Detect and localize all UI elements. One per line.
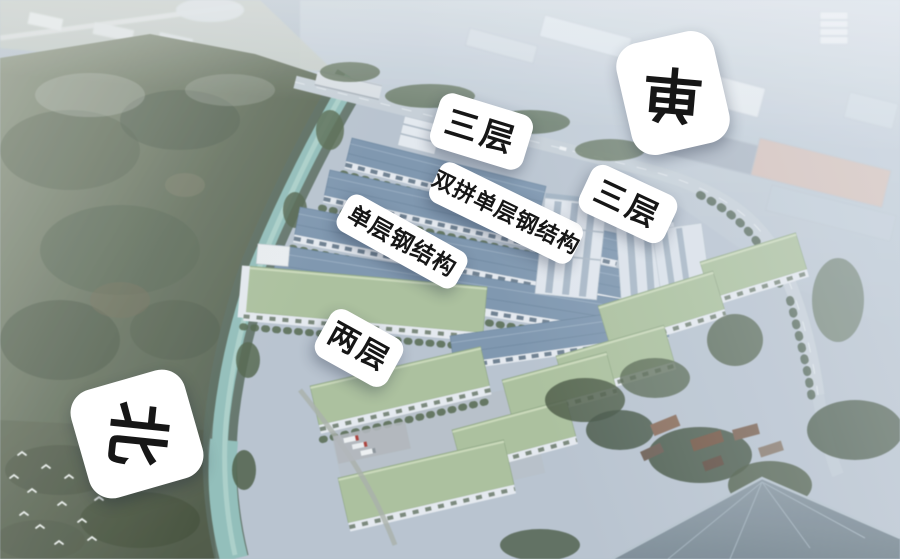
- single-marker-text: 单: [640, 60, 705, 125]
- aerial-site-photo: 三层 双拼单层钢结构 三层 单层钢结构 两层 北 单: [0, 0, 900, 559]
- label-three-floors-top-text: 三层: [441, 105, 521, 158]
- north-marker-text: 北: [102, 399, 172, 469]
